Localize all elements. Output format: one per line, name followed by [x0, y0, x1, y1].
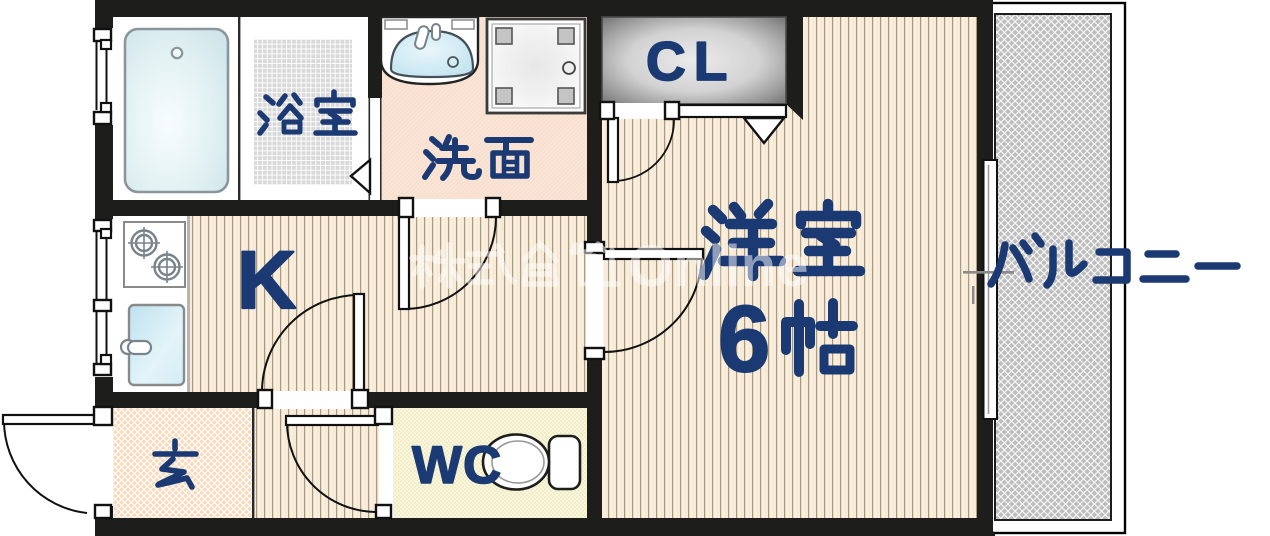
- svg-text:WC: WC: [412, 436, 502, 495]
- svg-text:Online: Online: [628, 234, 808, 299]
- svg-text:CL: CL: [646, 30, 735, 92]
- svg-text:6: 6: [718, 286, 770, 391]
- svg-text:K: K: [237, 235, 296, 326]
